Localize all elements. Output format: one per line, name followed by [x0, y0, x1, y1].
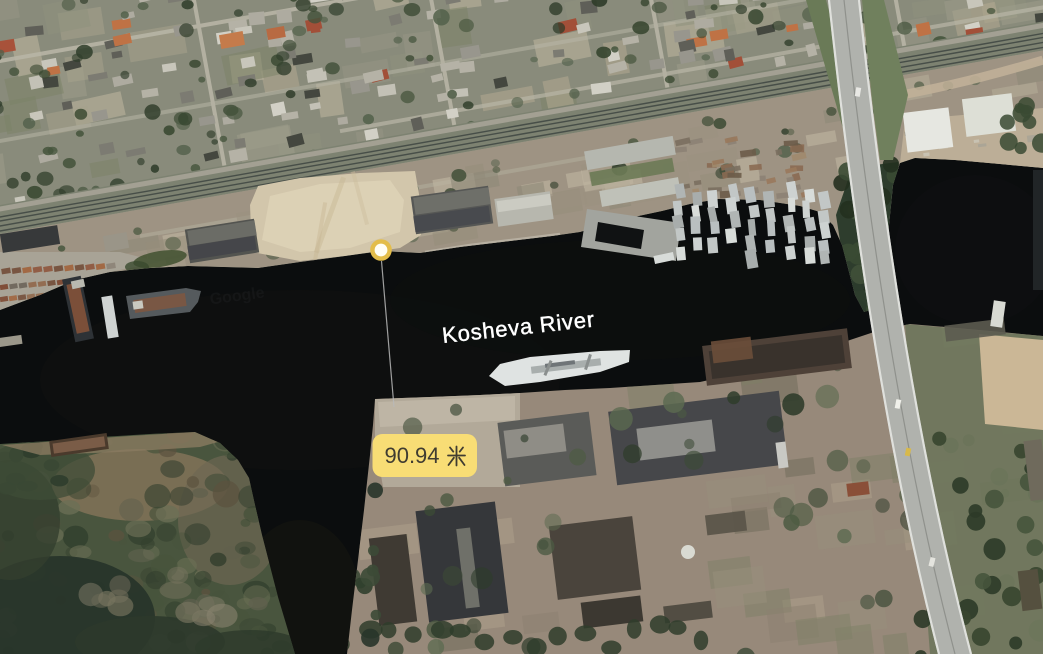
svg-text:90.94: 90.94 [384, 443, 439, 468]
